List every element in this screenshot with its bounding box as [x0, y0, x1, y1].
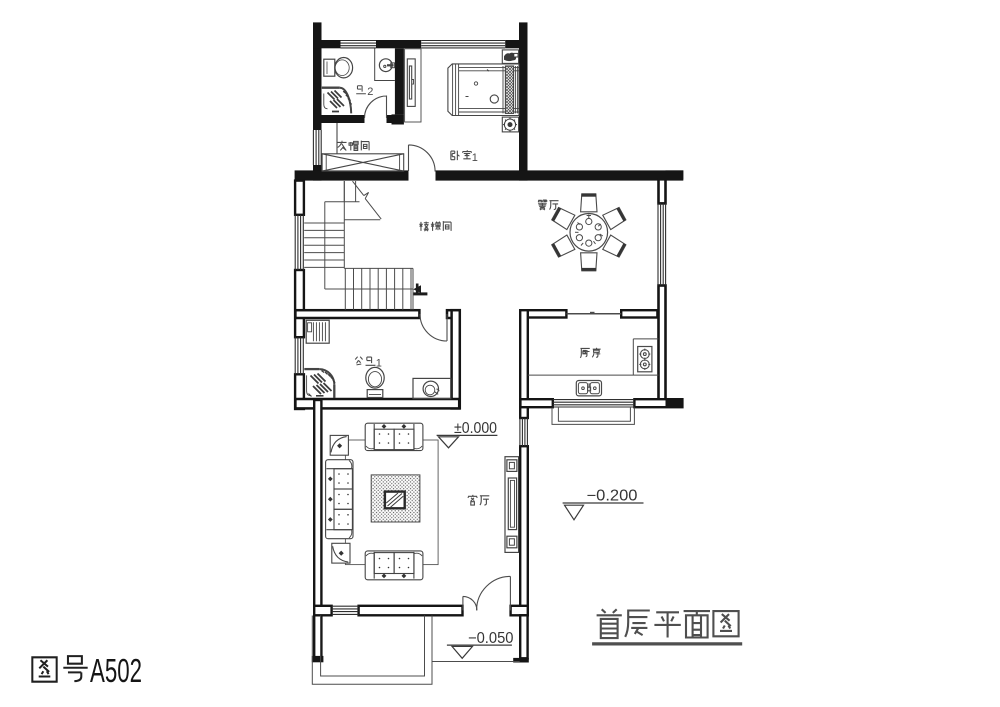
svg-text:A502: A502 — [90, 652, 142, 689]
svg-text:1: 1 — [376, 358, 382, 370]
svg-text:−0.050: −0.050 — [468, 630, 514, 647]
svg-text:−0.200: −0.200 — [587, 488, 638, 505]
svg-text:1: 1 — [472, 152, 478, 164]
svg-text:2: 2 — [367, 86, 373, 98]
svg-text:±0.000: ±0.000 — [454, 420, 497, 437]
